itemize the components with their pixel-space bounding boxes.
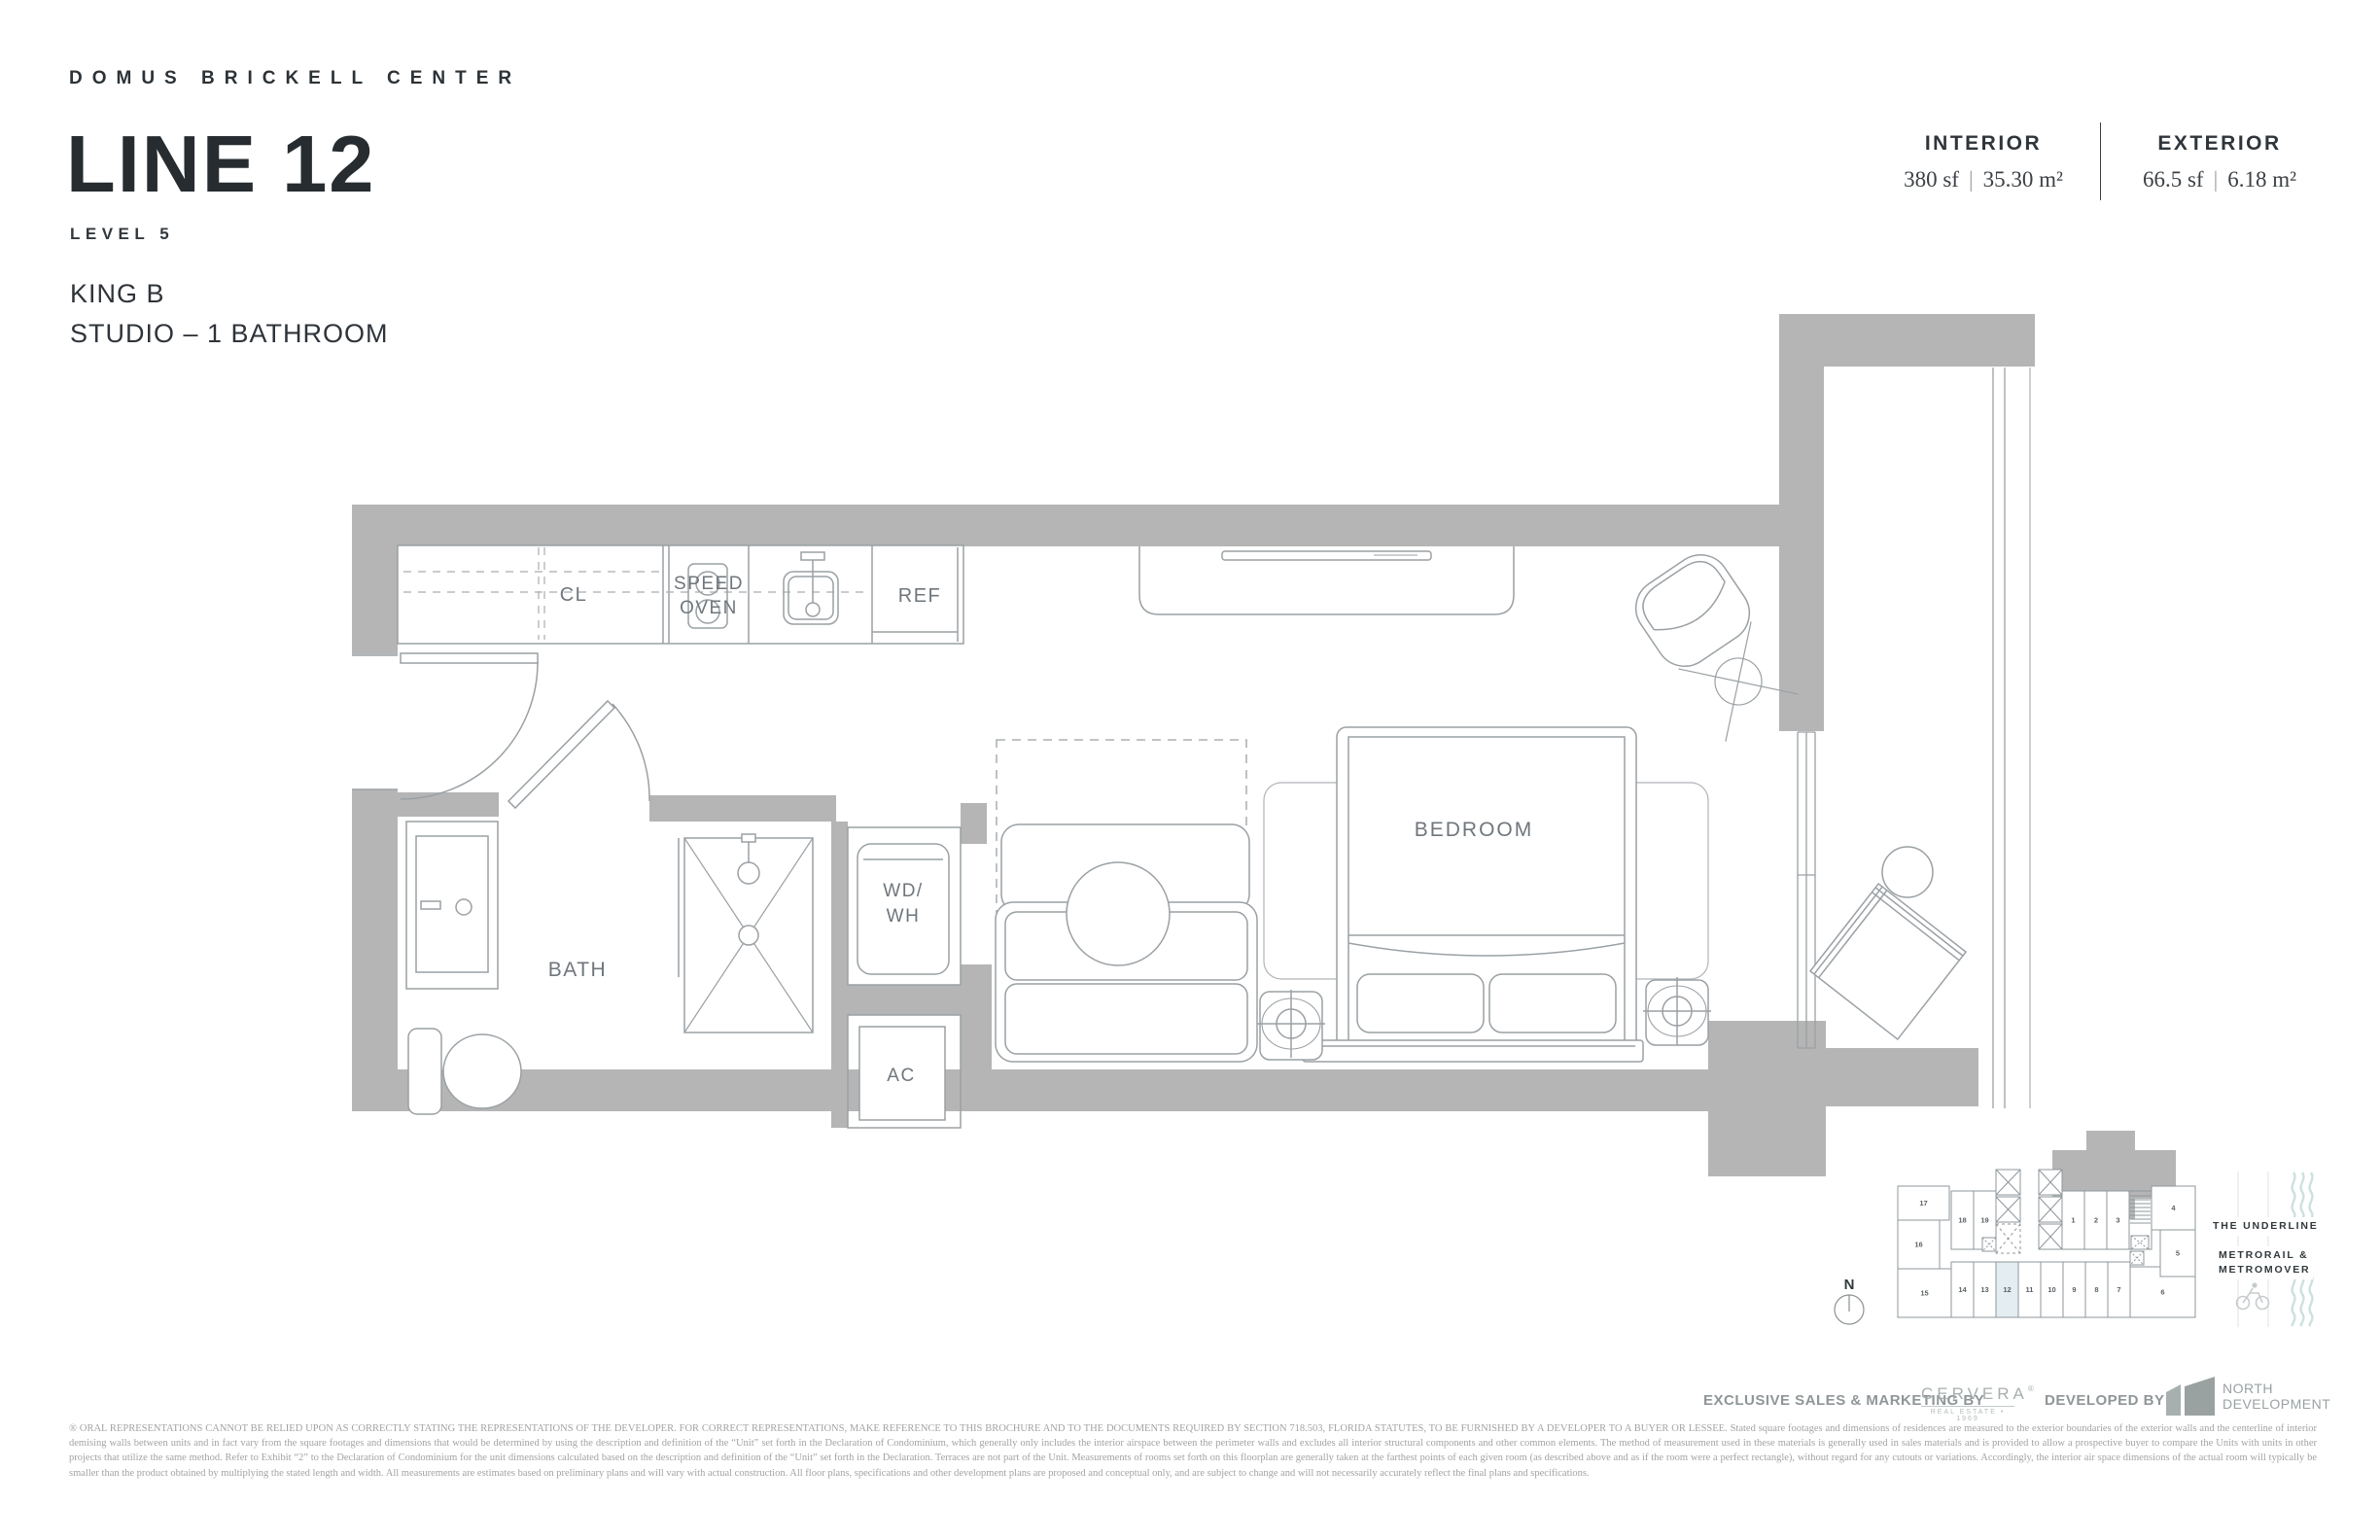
keyplan-unit-label-9: 9	[2072, 1285, 2076, 1294]
north-name-line2: DEVELOPMENT	[2222, 1396, 2330, 1412]
armchair-icon	[1625, 543, 1761, 678]
north-development-logo: NORTH DEVELOPMENT	[2166, 1377, 2330, 1416]
vanity-icon	[406, 822, 498, 989]
keyplan-unit-label-11: 11	[2026, 1285, 2034, 1294]
label-closet: CL	[560, 584, 588, 606]
kitchen-counter	[398, 545, 963, 644]
keyplan-unit-label-8: 8	[2094, 1285, 2098, 1294]
side-table-icon	[1882, 847, 1933, 897]
keyplan-unit-label-14: 14	[1958, 1285, 1967, 1294]
shower-icon	[679, 834, 813, 1032]
metrorail-note-line2: METROMOVER	[2219, 1263, 2310, 1277]
keyplan-unit-label-19: 19	[1980, 1216, 1988, 1225]
keyplan-unit-label-15: 15	[1920, 1289, 1928, 1298]
metrorail-note-line1: METRORAIL &	[2219, 1248, 2310, 1263]
toilet-icon	[408, 1029, 521, 1114]
interior-sf: 380 sf	[1904, 167, 1959, 192]
stats-divider	[2100, 122, 2101, 200]
compass-icon: N	[1835, 1277, 1864, 1324]
keyplan-unit-label-3: 3	[2116, 1216, 2119, 1225]
keyplan-unit-label-5: 5	[2176, 1249, 2180, 1258]
keyplan-unit-label-12: 12	[2003, 1285, 2011, 1294]
entry-door	[352, 653, 538, 799]
balcony	[1798, 367, 2030, 1108]
metrorail-note: METRORAIL & METROMOVER	[2216, 1246, 2313, 1279]
north-logo-icon	[2166, 1377, 2215, 1416]
unit-config: STUDIO – 1 BATHROOM	[70, 319, 389, 349]
floorplan-drawing: CL SPEED OVEN REF BATH WD/ WH AC BEDROOM…	[0, 0, 2380, 1540]
elevator-icon	[1996, 1170, 2062, 1253]
brochure-page: CL SPEED OVEN REF BATH WD/ WH AC BEDROOM…	[0, 0, 2380, 1540]
cervera-name: CERVERA	[1921, 1384, 2028, 1403]
cervera-registered-icon: ®	[2028, 1384, 2034, 1393]
label-speed-oven-2: OVEN	[680, 598, 738, 618]
balcony-chair-icon	[1810, 884, 1966, 1039]
exterior-values: 66.5 sf|6.18 m²	[2103, 167, 2336, 192]
north-name-line1: NORTH	[2222, 1381, 2330, 1396]
bed	[1303, 727, 1643, 1062]
underline-note: THE UNDERLINE	[2210, 1217, 2322, 1236]
label-bedroom: BEDROOM	[1415, 819, 1534, 841]
project-name: DOMUS BRICKELL CENTER	[69, 68, 521, 89]
keyplan-unit-label-18: 18	[1958, 1216, 1966, 1225]
label-ac: AC	[887, 1066, 915, 1086]
balcony-glass	[1993, 367, 2030, 1108]
ottoman-icon	[1067, 862, 1170, 965]
legal-disclaimer: ® ORAL REPRESENTATIONS CANNOT BE RELIED …	[69, 1421, 2317, 1481]
compass-n: N	[1844, 1277, 1855, 1293]
keyplan-unit-label-13: 13	[1980, 1285, 1988, 1294]
keyplan-unit-label-2: 2	[2094, 1216, 2098, 1225]
level-label: LEVEL 5	[70, 225, 174, 244]
developed-by-label: DEVELOPED BY	[2045, 1392, 2165, 1409]
keyplan-unit-label-1: 1	[2071, 1216, 2075, 1225]
label-washer-dryer-2: WH	[887, 906, 921, 927]
exterior-m2: 6.18 m²	[2227, 167, 2296, 192]
exterior-sf: 66.5 sf	[2143, 167, 2204, 192]
keyplan-unit-label-16: 16	[1914, 1241, 1922, 1249]
interior-m2: 35.30 m²	[1983, 167, 2063, 192]
cyclist-icon	[2237, 1282, 2269, 1309]
walls	[352, 314, 2176, 1219]
bath-door	[508, 701, 649, 808]
cervera-logo: CERVERA® REAL ESTATE • 1969	[1921, 1384, 2014, 1422]
interior-values: 380 sf|35.30 m²	[1867, 167, 2100, 192]
label-washer-dryer-1: WD/	[883, 881, 923, 901]
interior-stats: INTERIOR 380 sf|35.30 m²	[1867, 132, 2100, 192]
cervera-rule	[1921, 1406, 2014, 1407]
tv-console	[1139, 546, 1514, 614]
keyplan-unit-label-7: 7	[2117, 1285, 2120, 1294]
exterior-stats: EXTERIOR 66.5 sf|6.18 m²	[2103, 132, 2336, 192]
keyplan-unit-label-17: 17	[1919, 1199, 1927, 1207]
interior-label: INTERIOR	[1867, 132, 2100, 156]
exterior-label: EXTERIOR	[2103, 132, 2336, 156]
keyplan-unit-label-6: 6	[2160, 1288, 2164, 1297]
label-bath: BATH	[548, 959, 607, 981]
cervera-subtitle: REAL ESTATE • 1969	[1921, 1409, 2014, 1422]
tv-icon	[1222, 551, 1431, 560]
keyplan-unit-label-10: 10	[2047, 1285, 2055, 1294]
label-speed-oven-1: SPEED	[674, 574, 744, 594]
unit-type: KING B	[70, 279, 165, 309]
sliding-door	[1798, 732, 1815, 1048]
sofa	[996, 824, 1257, 1062]
label-fridge: REF	[898, 585, 942, 607]
page-title: LINE 12	[66, 122, 375, 206]
